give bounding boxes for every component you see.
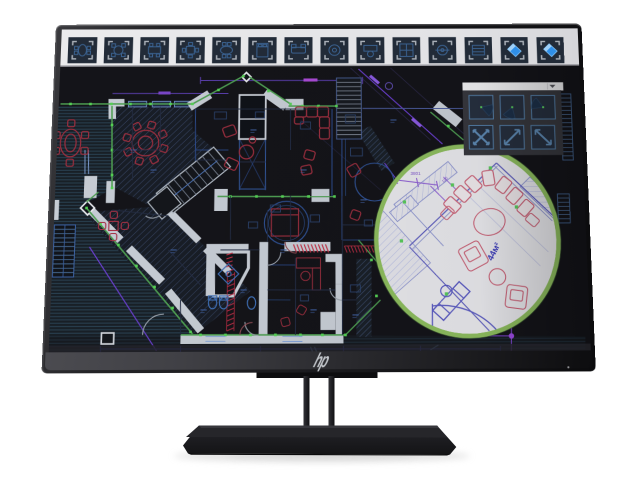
svg-text:hp: hp	[311, 350, 333, 373]
